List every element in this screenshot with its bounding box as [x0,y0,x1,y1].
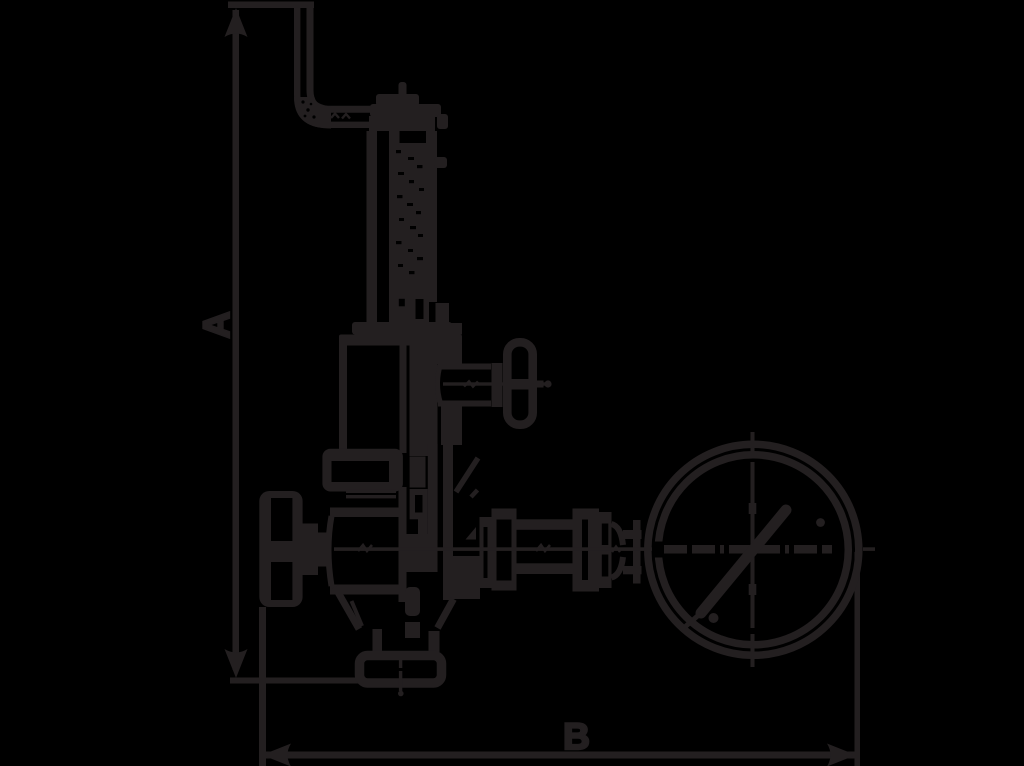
svg-text:A: A [196,312,237,339]
svg-text:B: B [563,716,590,757]
